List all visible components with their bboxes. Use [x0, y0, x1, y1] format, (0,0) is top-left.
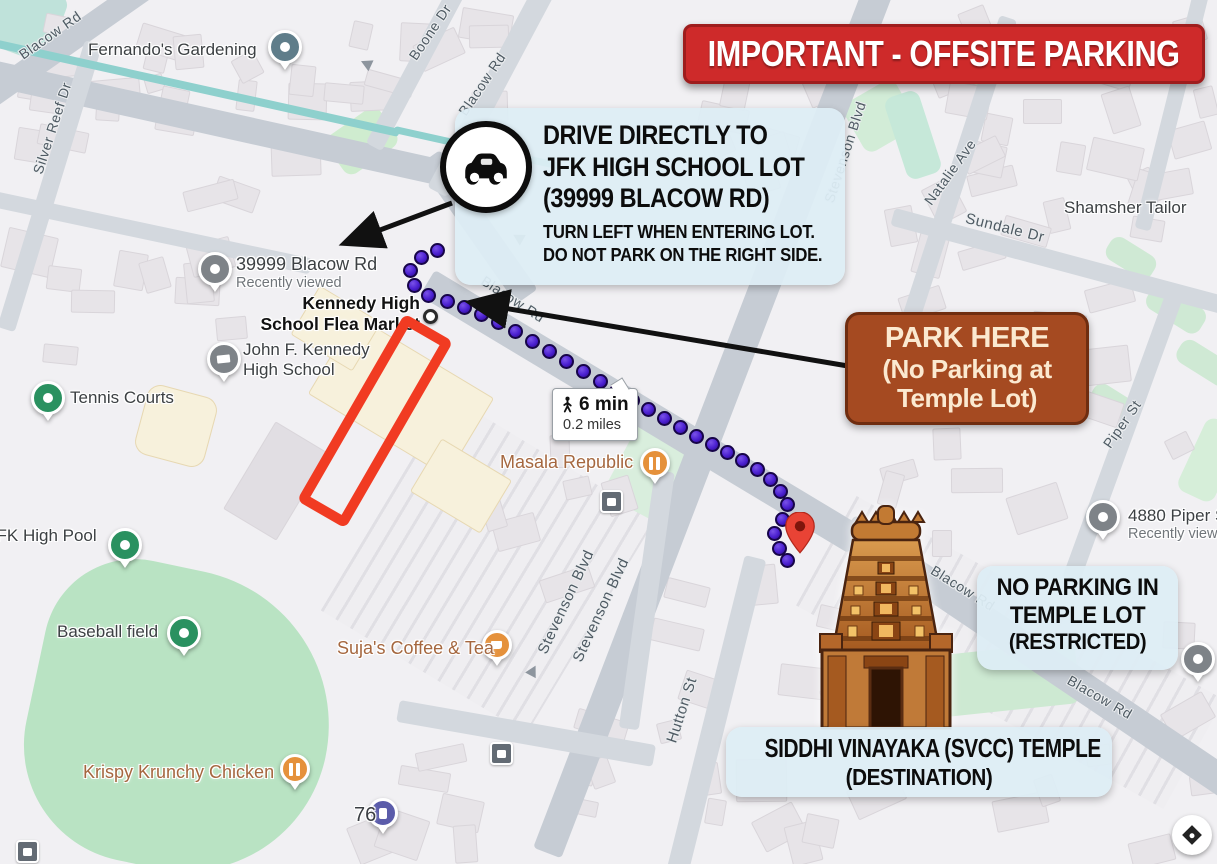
building-block	[932, 428, 962, 461]
instruction-line: (39999 BLACOW RD)	[543, 183, 799, 215]
poi-masala-republic[interactable]: Masala Republic	[500, 452, 633, 473]
jfk-high-school-pin[interactable]	[207, 342, 241, 384]
route-dot	[657, 411, 672, 426]
building-block	[138, 256, 172, 294]
poi-title-line2: High School	[243, 360, 370, 380]
route-dot	[525, 334, 540, 349]
instruction-line: JFK HIGH SCHOOL LOT	[543, 152, 799, 184]
route-dot	[750, 462, 765, 477]
park-here-line: (No Parking at	[848, 355, 1086, 384]
temple-icon	[806, 498, 966, 735]
route-dot	[735, 453, 750, 468]
poi-jfk-high-school[interactable]: John F. Kennedy High School	[243, 340, 370, 380]
route-dot	[407, 278, 422, 293]
poi-76-station[interactable]: 76	[354, 804, 376, 827]
building-block	[1023, 99, 1062, 124]
route-dot	[421, 288, 436, 303]
route-dot	[403, 263, 418, 278]
route-dot	[440, 294, 455, 309]
poi-jfk-pool[interactable]: JFK High Pool	[0, 526, 97, 546]
walk-distance: 0.2 miles	[563, 417, 631, 433]
jfk-pool-pin[interactable]	[108, 528, 142, 570]
building-block	[801, 813, 839, 849]
no-parking-box: NO PARKING IN TEMPLE LOT (RESTRICTED)	[977, 566, 1178, 670]
building-block	[453, 824, 478, 863]
route-dot	[491, 315, 506, 330]
building-block	[70, 289, 114, 313]
arrow-to-lot	[348, 203, 452, 242]
building-block	[649, 618, 705, 652]
poi-title-line1: John F. Kennedy	[243, 340, 370, 360]
building-block	[348, 20, 374, 51]
poi-tennis-courts[interactable]: Tennis Courts	[70, 388, 174, 408]
walking-icon	[561, 396, 574, 414]
poi-flea-market[interactable]: Kennedy High School Flea Market	[250, 293, 420, 335]
poi-title-line2: School Flea Market	[250, 314, 420, 335]
building-block	[46, 265, 82, 293]
park-area	[1173, 336, 1217, 390]
transit-stop-icon[interactable]	[600, 490, 623, 513]
instruction-subline: DO NOT PARK ON THE RIGHT SIDE.	[543, 243, 808, 266]
poi-fernandos-gardening[interactable]: Fernando's Gardening	[88, 40, 257, 60]
building-block	[215, 315, 248, 341]
route-dot	[689, 429, 704, 444]
building-block	[183, 178, 240, 212]
building-block	[415, 743, 468, 771]
no-parking-line: (RESTRICTED)	[985, 629, 1170, 654]
route-dot	[641, 402, 656, 417]
poi-krispy-krunchy[interactable]: Krispy Krunchy Chicken	[83, 762, 274, 783]
tennis-courts-pin[interactable]	[31, 381, 65, 423]
route-dot	[705, 437, 720, 452]
building-block	[704, 798, 727, 827]
building-block	[42, 344, 79, 366]
park-here-line: Temple Lot)	[848, 384, 1086, 413]
no-parking-line: TEMPLE LOT	[985, 602, 1170, 630]
route-dot	[576, 364, 591, 379]
poi-title: 39999 Blacow Rd	[236, 254, 377, 275]
building-block	[1056, 141, 1087, 175]
no-parking-line: NO PARKING IN	[985, 574, 1170, 602]
poi-shamsher-tailor[interactable]: Shamsher Tailor	[1064, 198, 1187, 218]
route-dot	[780, 553, 795, 568]
fernandos-gardening-pin[interactable]	[268, 30, 302, 72]
route-dot	[763, 472, 778, 487]
poi-subtitle: Recently viewed	[1128, 526, 1217, 542]
building-block	[663, 577, 711, 608]
poi-baseball-field[interactable]: Baseball field	[57, 622, 158, 642]
right-edge-pin[interactable]	[1181, 642, 1215, 684]
route-dot	[457, 300, 472, 315]
map-canvas[interactable]: Blacow Rd Silver Reef Dr Boone Dr Blacow…	[0, 0, 1217, 864]
building-block	[951, 468, 1003, 493]
39999-blacow-pin[interactable]	[198, 252, 232, 294]
route-dot	[720, 445, 735, 460]
banner-text: IMPORTANT - OFFSITE PARKING	[708, 33, 1180, 75]
instruction-line: DRIVE DIRECTLY TO	[543, 120, 799, 152]
route-dot	[593, 374, 608, 389]
poi-4880-piper[interactable]: 4880 Piper St Recently viewed	[1128, 506, 1217, 542]
pool-building	[223, 421, 329, 540]
park-here-line: PARK HERE	[848, 323, 1086, 355]
park-area	[1175, 415, 1217, 504]
park-here-box: PARK HERE (No Parking at Temple Lot)	[845, 312, 1089, 425]
poi-title: 4880 Piper St	[1128, 506, 1217, 526]
poi-subtitle: Recently viewed	[236, 275, 377, 291]
poi-title-line1: Kennedy High	[250, 293, 420, 314]
route-dot	[414, 250, 429, 265]
baseball-field-area	[2, 542, 358, 864]
building-block	[323, 82, 365, 105]
building-block	[1100, 85, 1141, 134]
destination-line: SIDDHI VINAYAKA (SVCC) TEMPLE	[765, 734, 1074, 764]
offsite-parking-banner: IMPORTANT - OFFSITE PARKING	[683, 24, 1205, 84]
baseball-field-pin[interactable]	[167, 616, 201, 658]
4880-piper-pin[interactable]	[1086, 500, 1120, 542]
building-block	[1127, 833, 1176, 864]
walking-time-badge[interactable]: 6 min 0.2 miles	[552, 388, 638, 441]
route-dot	[673, 420, 688, 435]
poi-39999-blacow[interactable]: 39999 Blacow Rd Recently viewed	[236, 254, 377, 291]
route-dot	[474, 307, 489, 322]
building-block	[1193, 85, 1217, 119]
building-block	[1086, 136, 1145, 180]
route-dot	[767, 526, 782, 541]
destination-line: (DESTINATION)	[745, 764, 1092, 790]
route-dot	[559, 354, 574, 369]
route-dot	[780, 497, 795, 512]
car-icon	[440, 121, 532, 213]
map-control-icon[interactable]	[1172, 815, 1212, 855]
poi-sujas-coffee[interactable]: Suja's Coffee & Tea	[337, 638, 494, 659]
destination-pin-icon[interactable]	[785, 512, 815, 554]
walk-duration: 6 min	[579, 394, 629, 416]
transit-stop-icon[interactable]	[490, 742, 513, 765]
street-label-hutton: Hutton St	[663, 675, 700, 745]
route-dot	[430, 243, 445, 258]
route-dot	[542, 344, 557, 359]
krispy-krunchy-pin[interactable]	[280, 754, 310, 792]
masala-republic-pin[interactable]	[640, 448, 670, 486]
transit-stop-icon[interactable]	[16, 840, 39, 863]
route-dot	[508, 324, 523, 339]
destination-box: SIDDHI VINAYAKA (SVCC) TEMPLE (DESTINATI…	[726, 727, 1112, 797]
building-block	[1006, 481, 1069, 535]
instruction-subline: TURN LEFT WHEN ENTERING LOT.	[543, 220, 808, 243]
route-start-marker	[423, 309, 438, 324]
